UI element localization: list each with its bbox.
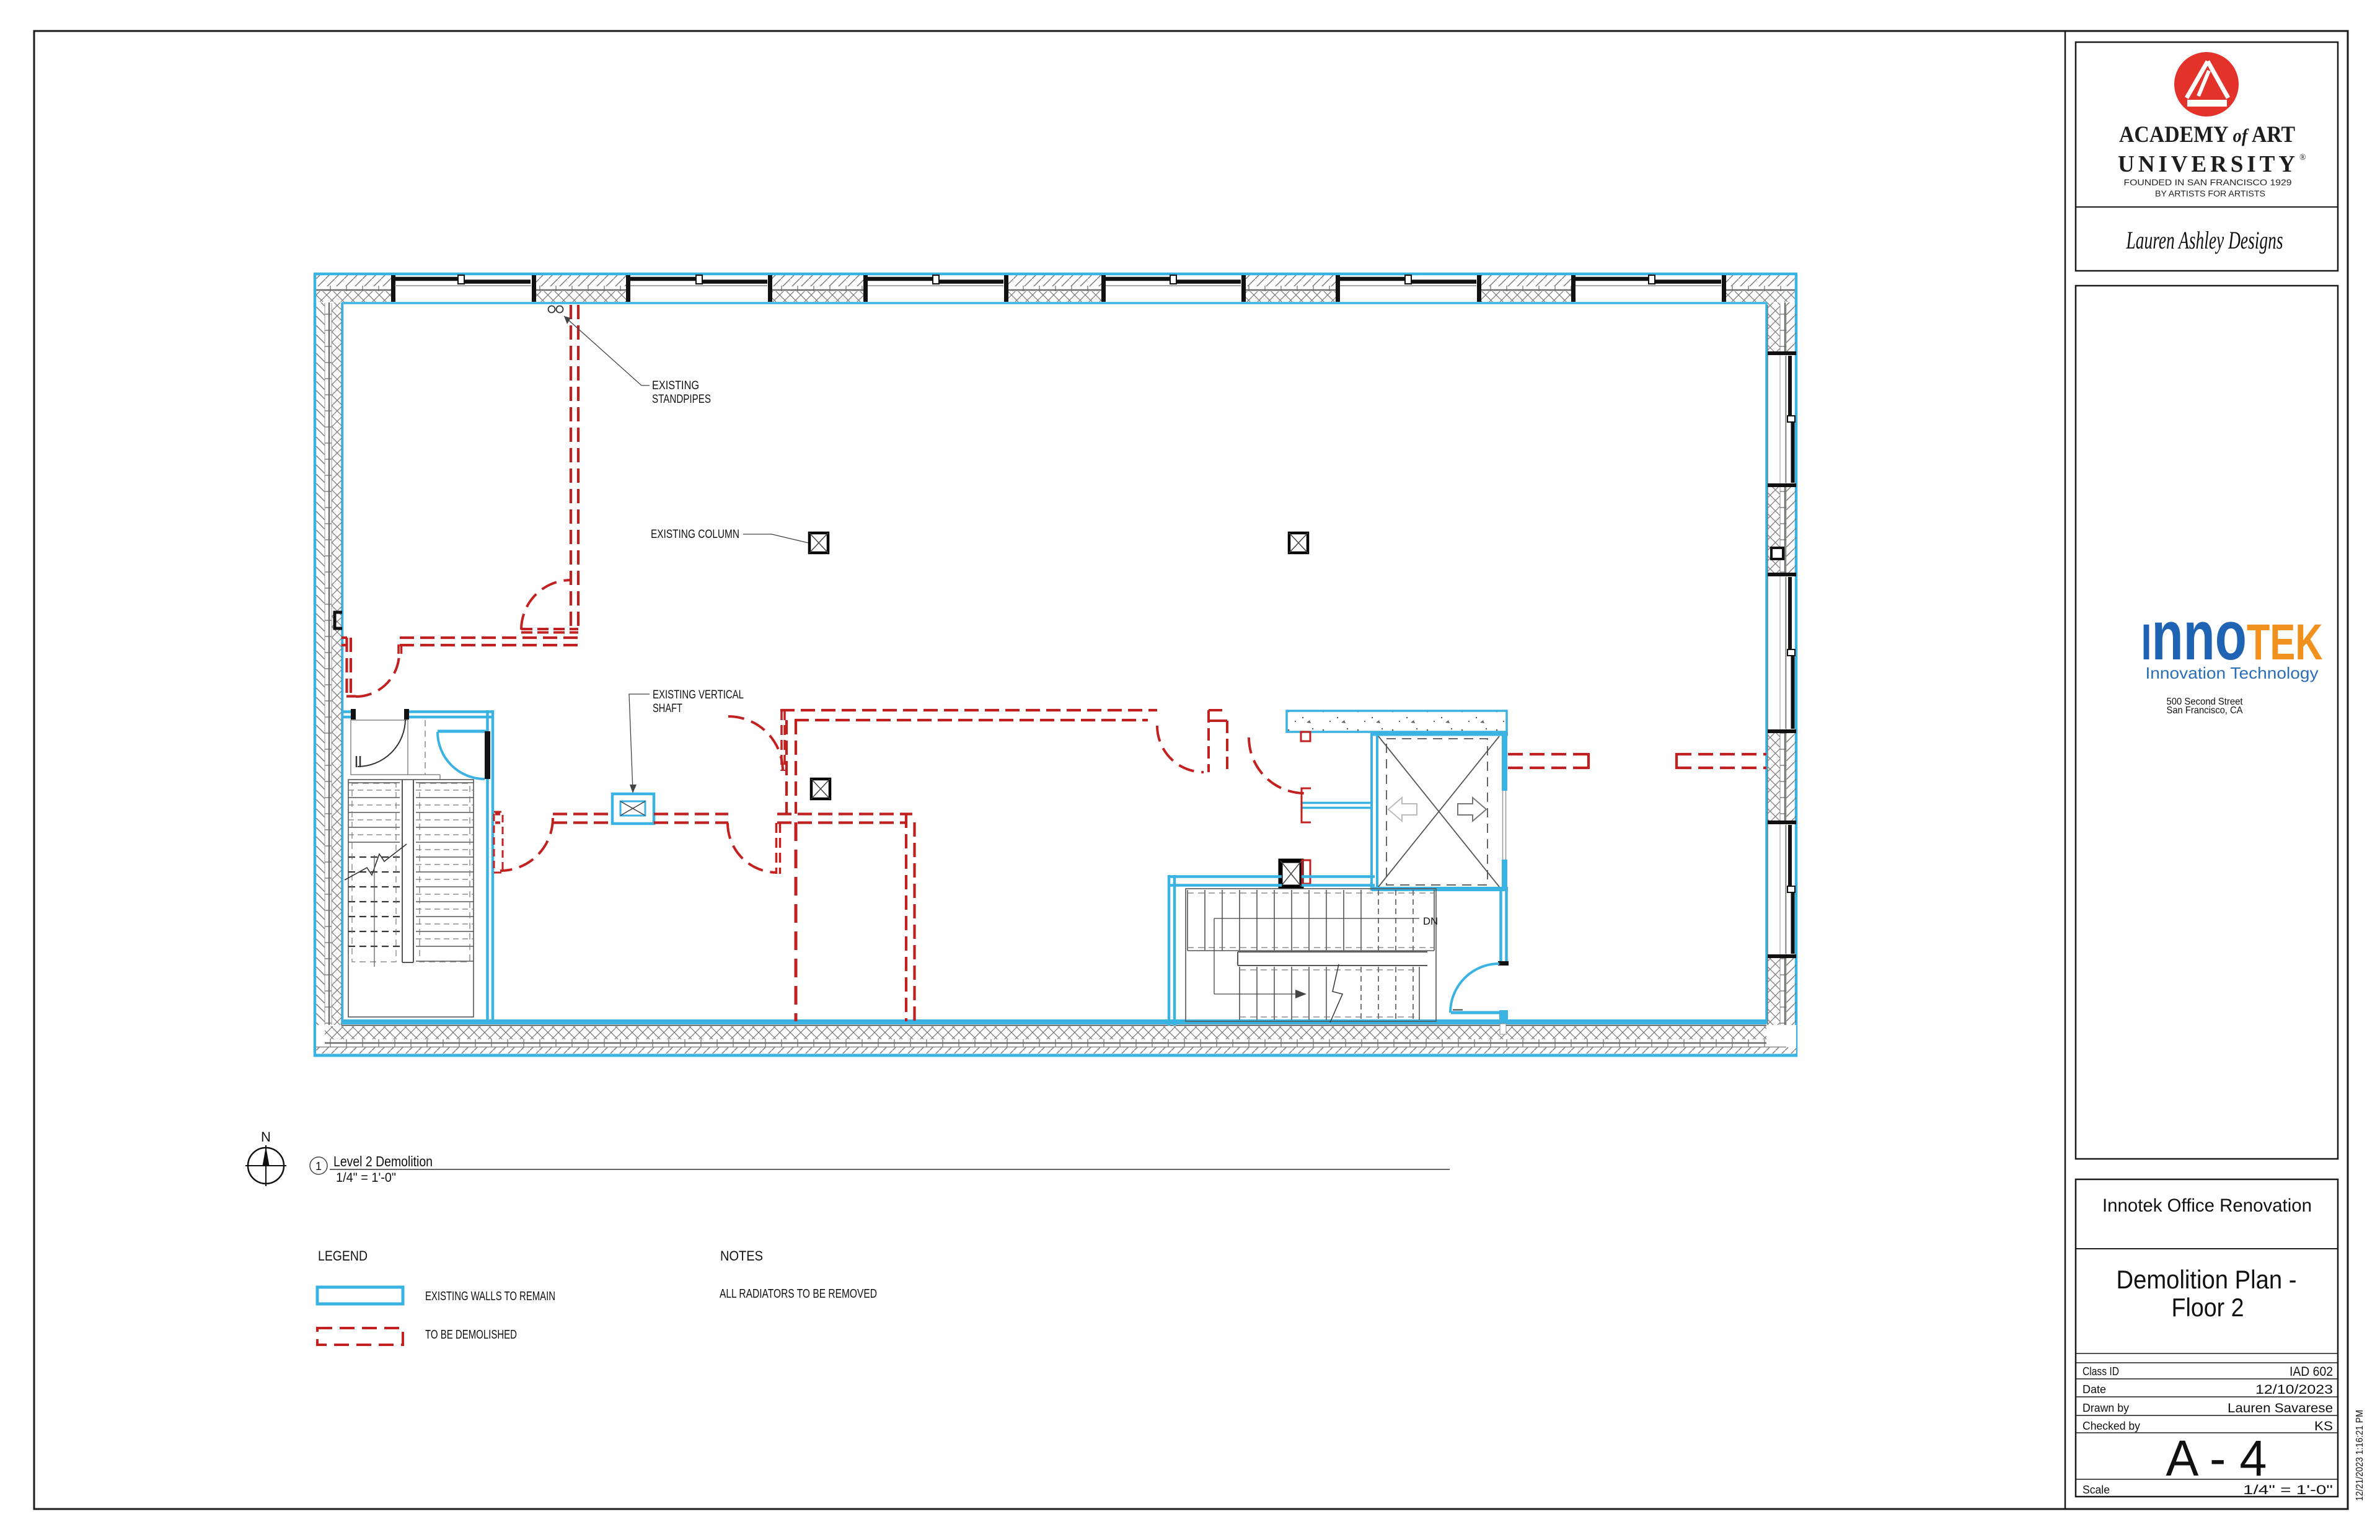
svg-text:Date: Date: [2082, 1383, 2106, 1396]
svg-text:1: 1: [315, 1160, 322, 1173]
svg-text:ALL RADIATORS TO BE REMOVED: ALL RADIATORS TO BE REMOVED: [720, 1287, 877, 1301]
svg-text:UNIVERSITY: UNIVERSITY: [2118, 151, 2299, 177]
svg-text:Level 2 Demolition: Level 2 Demolition: [333, 1153, 433, 1169]
svg-text:NOTES: NOTES: [720, 1248, 763, 1264]
svg-text:IAD 602: IAD 602: [2290, 1365, 2333, 1379]
svg-text:EXISTING COLUMN: EXISTING COLUMN: [651, 528, 739, 541]
svg-text:Drawn by: Drawn by: [2082, 1402, 2129, 1414]
svg-text:EXISTING VERTICAL: EXISTING VERTICAL: [653, 689, 744, 702]
svg-text:KS: KS: [2314, 1419, 2333, 1433]
svg-text:EXISTING: EXISTING: [652, 379, 699, 392]
svg-text:Class ID: Class ID: [2082, 1365, 2119, 1378]
svg-text:®: ®: [2299, 153, 2306, 162]
svg-text:12/21/2023 1:16:21 PM: 12/21/2023 1:16:21 PM: [2355, 1410, 2365, 1501]
svg-text:1/4" = 1'-0": 1/4" = 1'-0": [336, 1171, 396, 1185]
svg-text:1/4" = 1'-0": 1/4" = 1'-0": [2243, 1483, 2333, 1497]
svg-text:Checked by: Checked by: [2082, 1420, 2140, 1432]
svg-text:SHAFT: SHAFT: [653, 702, 682, 715]
svg-text:N: N: [261, 1129, 271, 1145]
svg-text:Demolition Plan -: Demolition Plan -: [2117, 1265, 2297, 1294]
svg-text:Innotek Office Renovation: Innotek Office Renovation: [2102, 1195, 2312, 1216]
svg-text:A - 4: A - 4: [2166, 1430, 2267, 1487]
svg-text:EXISTING WALLS TO REMAIN: EXISTING WALLS TO REMAIN: [425, 1290, 555, 1303]
svg-text:Scale: Scale: [2082, 1484, 2110, 1496]
svg-text:Innovation Technology: Innovation Technology: [2146, 664, 2319, 682]
svg-text:Lauren Ashley Designs: Lauren Ashley Designs: [2126, 226, 2283, 254]
svg-text:Lauren Savarese: Lauren Savarese: [2228, 1401, 2333, 1415]
svg-text:Floor 2: Floor 2: [2172, 1293, 2244, 1322]
svg-text:12/10/2023: 12/10/2023: [2255, 1383, 2333, 1397]
svg-text:BY ARTISTS FOR ARTISTS: BY ARTISTS FOR ARTISTS: [2155, 189, 2265, 198]
svg-text:STANDPIPES: STANDPIPES: [652, 393, 711, 406]
svg-text:TO BE DEMOLISHED: TO BE DEMOLISHED: [425, 1328, 517, 1342]
svg-text:DN: DN: [1423, 915, 1438, 927]
svg-text:LEGEND: LEGEND: [318, 1248, 368, 1264]
svg-text:ACADEMY of ART: ACADEMY of ART: [2119, 122, 2295, 147]
svg-text:FOUNDED IN SAN FRANCISCO 1929: FOUNDED IN SAN FRANCISCO 1929: [2124, 178, 2292, 187]
svg-text:San Francisco, CA: San Francisco, CA: [2167, 705, 2243, 716]
